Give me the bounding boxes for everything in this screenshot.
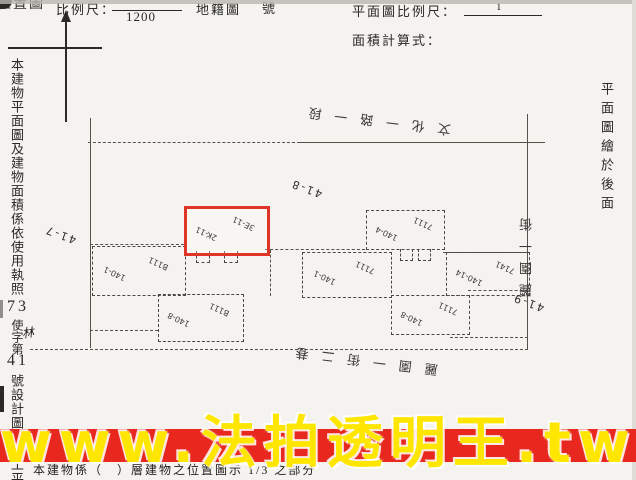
plan-scale-value: 1 [496,1,502,13]
building-label: 3E-11 [231,215,256,233]
lot-number-41-7: 41-7 [43,223,78,246]
scanned-survey-document: 位置圖 比例尺： 1200 地籍圖 號 平面圖比例尺： 1 面積計算式： 本建物… [0,0,636,480]
building-label: 140-1 [102,265,127,283]
parcel-line-left-2 [90,330,158,331]
building-label: 7111 [354,259,376,276]
building-label: 140-8 [166,311,191,329]
building-notch [418,249,431,261]
parcel-line-left [90,244,184,245]
right-margin-note: 平面圖繪於後面 [597,82,616,215]
building-block-3: 140-1 7111 [302,252,392,298]
building-label: 140-8 [399,310,424,328]
lot-number-41-8: 41-8 [289,177,324,200]
hao-label: 號 [262,0,277,17]
building-block-1: 140-1 B111 [92,246,186,296]
building-block-4: 140-4 7111 [366,210,445,250]
road-line-left [90,118,91,348]
cadastral-map-label: 地籍圖 [196,0,241,18]
street-name-top: 文化一路一段 [294,103,451,141]
parcel-line-vertical [270,250,271,296]
handwritten-mark: 林 [21,323,35,342]
building-label: 7141 [494,259,516,276]
plan-scale-label: 平面圖比例尺： [352,1,457,20]
road-line-top [300,142,545,143]
building-label: 7111 [412,215,434,232]
plan-scale-line [464,15,542,16]
building-block-6: 140-8 7111 [391,295,470,335]
scan-smudge [0,386,4,412]
road-line-bottom [30,349,528,350]
building-label: 140-1 [312,269,337,287]
road-line-top-left [88,142,300,143]
street-name-right: 麗園一街 [517,165,536,297]
permit-year: 73 [7,298,29,316]
watermark-text: www.法拍透明王.tw [0,412,636,476]
building-label: 140-14 [454,267,483,287]
permit-number: 41 [7,352,29,370]
dash-line-bottom-right [450,337,528,338]
scale-denominator: 1200 [126,9,156,25]
building-label: 7111 [437,300,459,317]
area-formula-label: 面積計算式： [352,30,442,49]
building-label: 140-4 [374,225,399,243]
parcel-line-mid [265,249,365,250]
building-notch [400,249,413,261]
scan-smudge [0,300,3,318]
left-margin-note-1: 本建物平面圖及建物面積係依使用執照 [7,58,26,296]
highlighted-building: 2K-11 3E-11 [184,206,270,256]
building-label: 2K-11 [194,225,218,243]
building-label: B111 [147,255,170,272]
building-block-2: 140-8 B111 [158,294,244,342]
building-label: B111 [208,301,231,318]
